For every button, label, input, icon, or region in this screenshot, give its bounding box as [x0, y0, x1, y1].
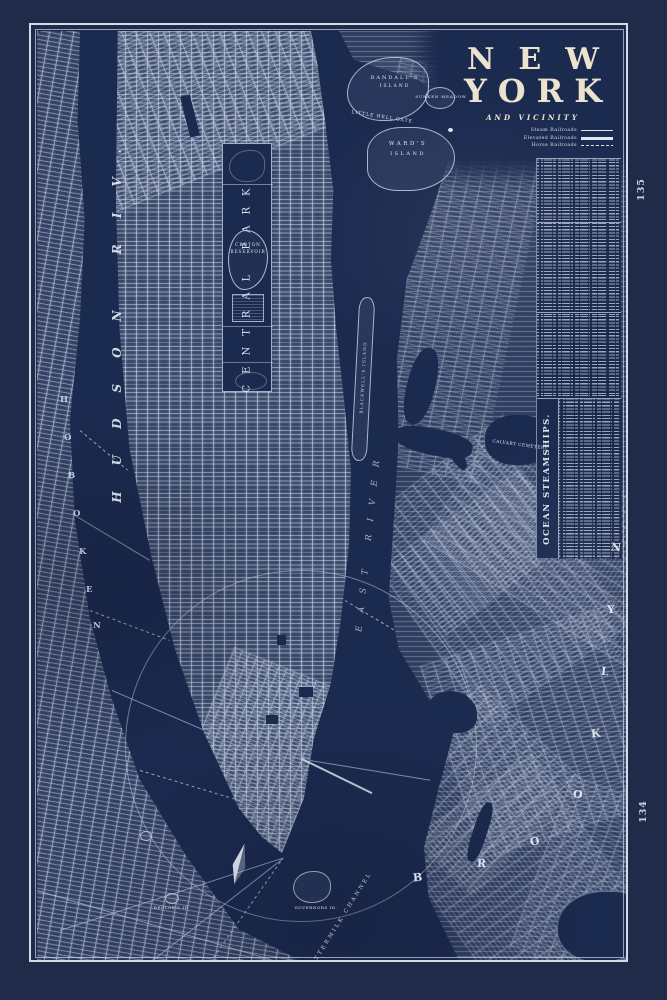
governors-island-label: GOVERNORS ID. [289, 905, 343, 910]
hoboken-letter: H [60, 395, 68, 405]
index-panel: OCEAN STEAMSHIPS. [536, 158, 621, 558]
ferry-route [90, 610, 170, 641]
title-subtitle: AND VICINITY [433, 113, 626, 122]
ellis-island [140, 831, 152, 841]
brooklyn-letter: R [477, 857, 487, 871]
hoboken-letter: N [93, 621, 101, 631]
legend-row: Horse Railroads [523, 142, 619, 150]
map-plate: BLACKWELL'S ISLAND CROTON RESERVOIR CENT… [37, 31, 626, 960]
central-park-label: CENTRAL PARK [242, 161, 256, 410]
legend-label: Steam Railroads [523, 128, 577, 133]
governors-island [293, 871, 331, 903]
elevated-railroad-line-sample [581, 137, 613, 140]
horse-railroad-line-sample [581, 145, 613, 146]
brooklyn-letter: K [590, 727, 601, 741]
hudson-river-label: HUDSON RIV. [110, 60, 126, 566]
title-block: NEW YORK AND VICINITY [433, 45, 626, 122]
legend-row: Steam Railroads [523, 127, 619, 135]
central-park: CROTON RESERVOIR CENTRAL PARK [222, 143, 272, 392]
bedloes-island-label: BEDLOE'S ID. [145, 905, 199, 910]
bedloes-island [165, 893, 179, 904]
railroad-index-section [537, 312, 621, 398]
wards-line2: ISLAND [368, 151, 448, 157]
blueprint-map-page: BLACKWELL'S ISLAND CROTON RESERVOIR CENT… [0, 0, 667, 1000]
blackwells-island-label: BLACKWELL'S ISLAND [357, 302, 370, 452]
steamship-heading-box: OCEAN STEAMSHIPS. [537, 399, 559, 559]
page-number-top: 135 [636, 178, 647, 201]
brooklyn-letter: L [600, 665, 609, 679]
legend-row: Elevated Railroads [523, 135, 619, 143]
wards-island-label: WARD'S ISLAND [368, 141, 448, 157]
legend-label: Horse Railroads [523, 143, 577, 148]
steamship-section: OCEAN STEAMSHIPS. [537, 398, 621, 558]
upper-manhattan-grid [37, 31, 367, 219]
blackwells-island: BLACKWELL'S ISLAND [351, 297, 376, 462]
street-index-section [537, 222, 621, 312]
steamship-table [559, 399, 622, 559]
washington-square [266, 715, 278, 724]
title-line2: YORK [433, 75, 626, 109]
randalls-line1: RANDALL'S [355, 75, 435, 81]
brooklyn-letter: O [529, 834, 540, 848]
brooklyn-letter: N [610, 541, 621, 555]
randalls-island-label: RANDALL'S ISLAND [355, 75, 435, 89]
paper-fleck [448, 128, 453, 132]
randalls-line2: ISLAND [355, 84, 435, 89]
wards-line1: WARD'S [368, 141, 448, 147]
page-number-bottom: 134 [638, 800, 649, 823]
steam-railroad-line-sample [581, 130, 613, 131]
hoboken-letter: O [73, 509, 80, 519]
brooklyn-letter: B [412, 871, 423, 885]
legend: Steam Railroads Elevated Railroads Horse… [523, 127, 619, 150]
hoboken-letter: E [86, 585, 92, 595]
madison-square [277, 635, 286, 645]
legend-label: Elevated Railroads [523, 136, 577, 141]
hoboken-letter: K [79, 547, 86, 557]
title-line1: NEW [433, 45, 626, 75]
brooklyn-letter: Y [607, 603, 616, 617]
hoboken-letter: O [64, 433, 71, 443]
wallabout-bay [427, 691, 477, 733]
hoboken-letter: B [68, 471, 75, 481]
ferry-index-section [537, 158, 621, 222]
ocean-steamships-heading: OCEAN STEAMSHIPS. [542, 399, 554, 559]
tompkins-square [299, 687, 313, 697]
brooklyn-letter: O [572, 788, 583, 802]
